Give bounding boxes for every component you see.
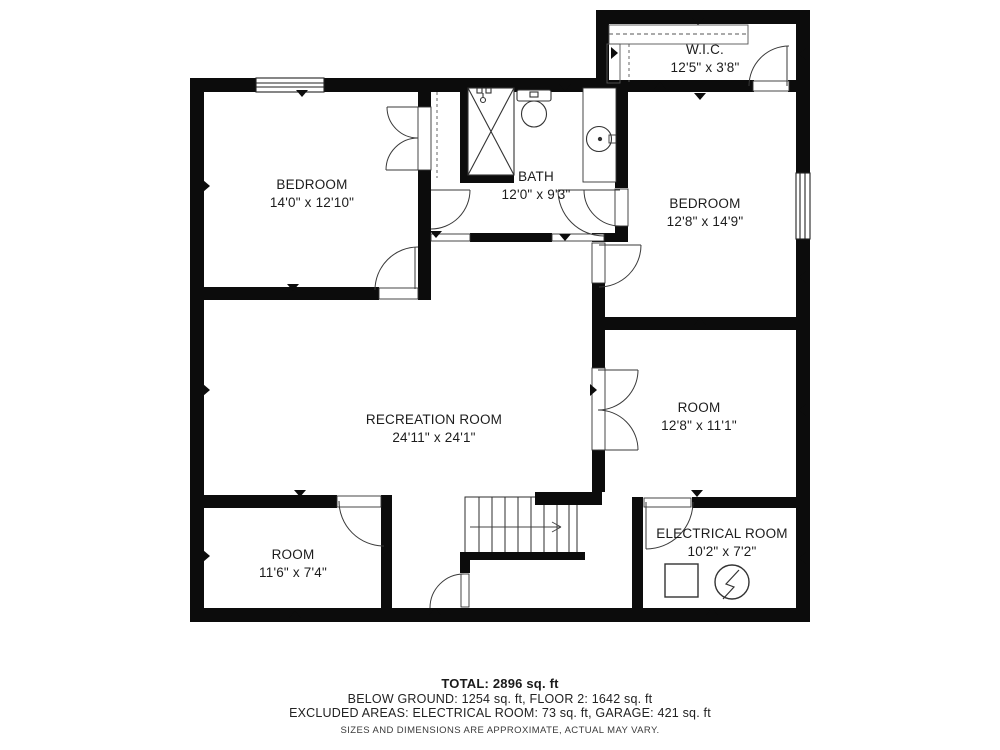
room-dims: 12'8" x 11'1" [661, 418, 737, 434]
room-dims: 12'0" x 9'3" [502, 187, 571, 203]
footer-total-area: TOTAL: 2896 sq. ft [0, 676, 1000, 691]
room-label-bedroom-left: BEDROOM 14'0" x 12'10" [270, 177, 354, 211]
room-dims: 12'8" x 14'9" [667, 214, 744, 230]
floorplan-drawing [0, 0, 1000, 750]
footer-area-breakdown: BELOW GROUND: 1254 sq. ft, FLOOR 2: 1642… [0, 692, 1000, 706]
room-label-bath: BATH 12'0" x 9'3" [502, 169, 571, 203]
window-top [256, 78, 324, 92]
room-name: RECREATION ROOM [366, 412, 502, 428]
room-dims: 14'0" x 12'10" [270, 195, 354, 211]
room-name: ROOM [661, 400, 737, 416]
room-name: W.I.C. [671, 42, 740, 58]
footer-disclaimer: SIZES AND DIMENSIONS ARE APPROXIMATE, AC… [0, 725, 1000, 736]
room-name: ELECTRICAL ROOM [656, 526, 788, 542]
electrical-symbol-icon [715, 565, 749, 599]
bath-fixtures [468, 88, 616, 182]
window-right [796, 173, 810, 239]
electrical-panel-icon [665, 564, 698, 597]
room-name: BATH [502, 169, 571, 185]
room-label-room-bottom-left: ROOM 11'6" x 7'4" [259, 547, 327, 581]
toilet-icon [517, 90, 551, 127]
room-label-room-right: ROOM 12'8" x 11'1" [661, 400, 737, 434]
room-label-recreation: RECREATION ROOM 24'11" x 24'1" [366, 412, 502, 446]
shower-icon [468, 88, 514, 175]
sink-icon [583, 88, 616, 182]
room-label-electrical: ELECTRICAL ROOM 10'2" x 7'2" [656, 526, 788, 560]
footer-excluded-areas: EXCLUDED AREAS: ELECTRICAL ROOM: 73 sq. … [0, 706, 1000, 720]
room-label-bedroom-right: BEDROOM 12'8" x 14'9" [667, 196, 744, 230]
room-dims: 24'11" x 24'1" [366, 430, 502, 446]
room-label-wic: W.I.C. 12'5" x 3'8" [671, 42, 740, 76]
room-name: ROOM [259, 547, 327, 563]
room-dims: 12'5" x 3'8" [671, 60, 740, 76]
stairs [465, 497, 577, 553]
room-name: BEDROOM [270, 177, 354, 193]
room-name: BEDROOM [667, 196, 744, 212]
electrical-fixtures [665, 564, 749, 599]
room-dims: 11'6" x 7'4" [259, 565, 327, 581]
room-dims: 10'2" x 7'2" [656, 544, 788, 560]
floorplan-page: BEDROOM 14'0" x 12'10" BATH 12'0" x 9'3"… [0, 0, 1000, 750]
